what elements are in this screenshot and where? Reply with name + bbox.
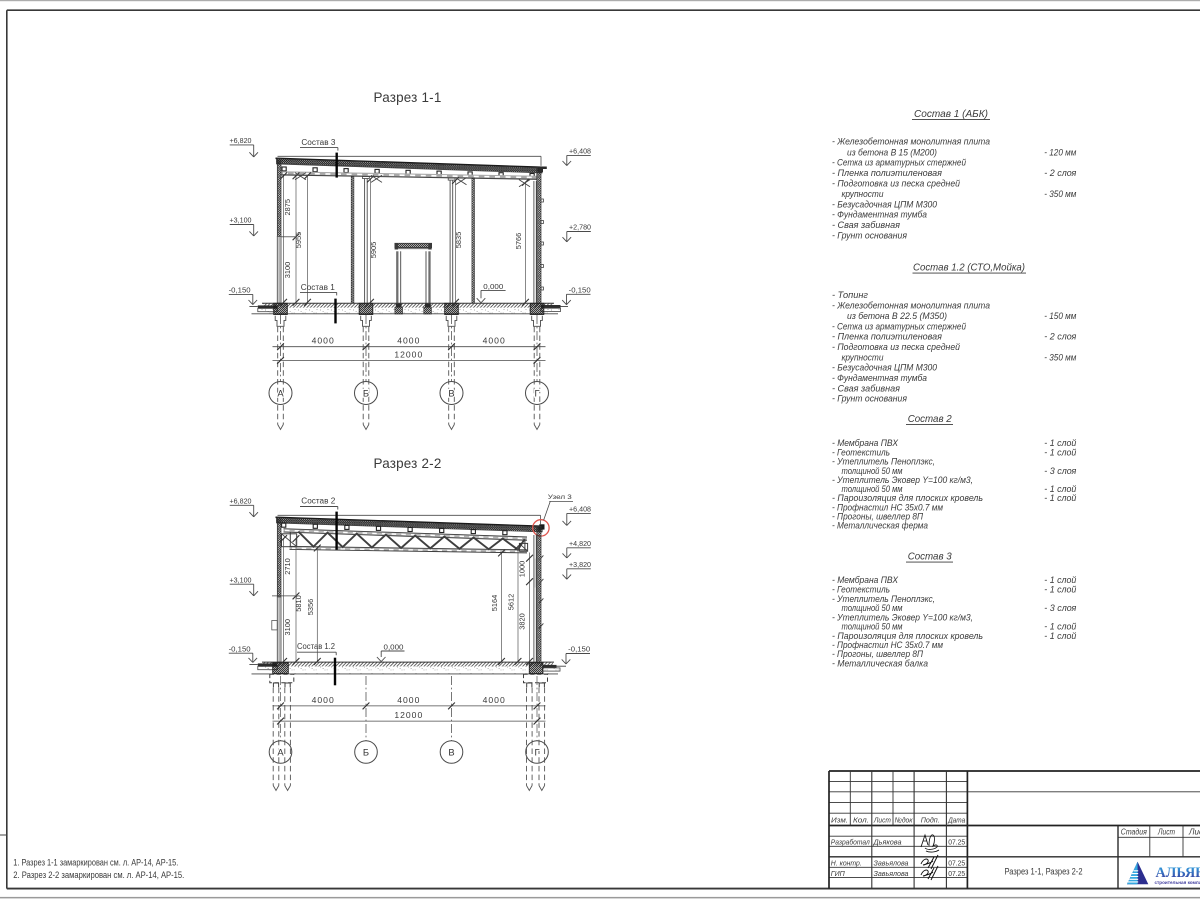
svg-text:Б: Б <box>363 746 369 757</box>
svg-text:07.25: 07.25 <box>948 859 965 868</box>
svg-text:Г: Г <box>534 746 539 757</box>
svg-text:- 1 слой: - 1 слой <box>1044 438 1076 448</box>
svg-text:- Свая забивная: - Свая забивная <box>832 383 900 393</box>
svg-text:4000: 4000 <box>397 695 420 705</box>
svg-text:-0,150: -0,150 <box>229 646 251 653</box>
svg-text:- Сетка из арматурных стержней: - Сетка из арматурных стержней <box>832 158 966 168</box>
svg-text:Разрез 1-1, Разрез 2-2: Разрез 1-1, Разрез 2-2 <box>1005 867 1083 878</box>
svg-text:Изм.: Изм. <box>831 815 848 824</box>
svg-text:Кол.: Кол. <box>853 815 869 824</box>
svg-text:Состав 1 (АБК): Состав 1 (АБК) <box>914 109 988 120</box>
svg-text:№док: №док <box>895 815 913 824</box>
svg-text:Разрез 1-1: Разрез 1-1 <box>374 90 442 105</box>
svg-text:Состав 2: Состав 2 <box>908 414 952 425</box>
svg-text:Разработал: Разработал <box>831 838 871 847</box>
svg-text:- 1 слой: - 1 слой <box>1044 493 1076 503</box>
svg-text:- Мембрана ПВХ: - Мембрана ПВХ <box>832 438 899 448</box>
svg-text:3820: 3820 <box>518 613 527 630</box>
svg-text:4000: 4000 <box>397 336 420 346</box>
svg-text:Завьялова: Завьялова <box>874 859 909 868</box>
svg-text:Состав 1.2 (СТО,Мойка): Состав 1.2 (СТО,Мойка) <box>913 263 1025 274</box>
svg-text:Б: Б <box>363 387 369 398</box>
svg-text:0,000: 0,000 <box>384 644 404 651</box>
svg-text:+3,820: +3,820 <box>569 562 591 569</box>
svg-text:+3,100: +3,100 <box>230 218 252 225</box>
svg-text:5766: 5766 <box>514 233 523 250</box>
svg-text:- Топинг: - Топинг <box>832 290 869 300</box>
svg-text:Лист: Лист <box>873 815 891 824</box>
svg-text:+3,100: +3,100 <box>230 577 252 584</box>
svg-text:12000: 12000 <box>394 349 423 359</box>
svg-text:- 2 слоя: - 2 слоя <box>1044 168 1076 178</box>
svg-text:- 1 слой: - 1 слой <box>1044 584 1076 594</box>
svg-text:2. Разрез 2-2 замаркирован см.: 2. Разрез 2-2 замаркирован см. л. АР-14,… <box>13 870 184 880</box>
svg-text:А: А <box>277 387 284 398</box>
svg-text:- Грунт основания: - Грунт основания <box>832 231 907 241</box>
svg-text:- Фундаментная тумба: - Фундаментная тумба <box>832 210 927 220</box>
svg-text:3100: 3100 <box>283 619 292 636</box>
svg-text:Н. контр.: Н. контр. <box>831 859 862 868</box>
svg-text:Узел 3: Узел 3 <box>548 494 572 501</box>
svg-text:Дьякова: Дьякова <box>873 838 902 847</box>
svg-text:5955: 5955 <box>294 232 303 249</box>
svg-text:строительная компания: строительная компания <box>1155 880 1200 885</box>
svg-text:5905: 5905 <box>369 242 378 259</box>
svg-text:5356: 5356 <box>306 599 315 616</box>
svg-text:Лист: Лист <box>1157 827 1175 836</box>
svg-text:0,000: 0,000 <box>483 284 503 291</box>
svg-text:- Железобетонная монолитная п: - Железобетонная монолитная плита <box>832 301 990 311</box>
svg-text:4000: 4000 <box>483 336 506 346</box>
svg-text:- Фундаментная тумба: - Фундаментная тумба <box>832 373 927 383</box>
svg-text:-0,150: -0,150 <box>229 288 251 295</box>
svg-text:+4,820: +4,820 <box>569 541 591 548</box>
svg-text:- 120 мм: - 120 мм <box>1044 147 1076 157</box>
svg-text:- Металлическая балка: - Металлическая балка <box>832 658 928 668</box>
svg-text:Дата: Дата <box>947 815 965 824</box>
svg-text:- 350 мм: - 350 мм <box>1044 352 1076 362</box>
svg-text:Состав 2: Состав 2 <box>301 497 335 506</box>
svg-text:- Металлическая ферма: - Металлическая ферма <box>832 520 928 530</box>
svg-text:крупности: крупности <box>842 352 884 362</box>
svg-text:Подп.: Подп. <box>921 815 940 824</box>
svg-text:1. Разрез 1-1 замаркирован см.: 1. Разрез 1-1 замаркирован см. л. АР-14,… <box>13 857 178 867</box>
svg-text:ГИП: ГИП <box>831 869 846 878</box>
svg-text:12000: 12000 <box>394 710 423 720</box>
svg-text:Завьялова: Завьялова <box>874 869 909 878</box>
svg-text:- 150 мм: - 150 мм <box>1044 311 1076 321</box>
svg-text:2875: 2875 <box>283 199 292 216</box>
svg-text:Состав 3: Состав 3 <box>301 138 336 147</box>
svg-text:Г: Г <box>534 387 539 398</box>
svg-text:Разрез 2-2: Разрез 2-2 <box>374 456 442 471</box>
svg-text:4000: 4000 <box>312 336 335 346</box>
svg-text:- 1 слой: - 1 слой <box>1044 447 1076 457</box>
svg-text:2710: 2710 <box>283 558 292 575</box>
svg-text:- Пленка полиэтиленовая: - Пленка полиэтиленовая <box>832 168 942 178</box>
svg-text:- 1 слой: - 1 слой <box>1044 631 1076 641</box>
svg-text:В: В <box>448 746 454 757</box>
svg-text:5164: 5164 <box>490 595 499 612</box>
svg-text:- Подготовка из песка средней: - Подготовка из песка средней <box>832 179 960 189</box>
svg-text:+6,820: +6,820 <box>230 138 252 145</box>
svg-text:07.25: 07.25 <box>948 838 965 847</box>
svg-text:- 3 слоя: - 3 слоя <box>1044 603 1076 613</box>
svg-text:крупности: крупности <box>842 189 884 199</box>
svg-text:В: В <box>448 387 454 398</box>
svg-text:- 350 мм: - 350 мм <box>1044 189 1076 199</box>
svg-text:+6,408: +6,408 <box>569 507 591 514</box>
svg-text:Состав 1: Состав 1 <box>301 283 335 292</box>
svg-text:5810: 5810 <box>294 595 303 612</box>
svg-text:5835: 5835 <box>454 232 463 249</box>
svg-text:из бетона В 22.5 (М350): из бетона В 22.5 (М350) <box>847 311 947 321</box>
svg-text:4000: 4000 <box>312 695 335 705</box>
svg-text:+6,820: +6,820 <box>230 498 252 505</box>
svg-text:- Безусадочная ЦПМ М300: - Безусадочная ЦПМ М300 <box>832 200 937 210</box>
svg-text:- Пленка полиэтиленовая: - Пленка полиэтиленовая <box>832 332 942 342</box>
svg-text:- Свая забивная: - Свая забивная <box>832 220 900 230</box>
svg-text:АЛЬЯНС: АЛЬЯНС <box>1156 865 1200 881</box>
svg-text:Лис: Лис <box>1188 827 1200 836</box>
svg-text:+6,408: +6,408 <box>569 149 591 156</box>
svg-text:- Железобетонная монолитная п: - Железобетонная монолитная плита <box>832 136 990 146</box>
svg-text:-0,150: -0,150 <box>568 647 590 654</box>
svg-text:А: А <box>277 746 284 757</box>
svg-text:Состав 3: Состав 3 <box>908 552 952 563</box>
svg-text:- 3 слоя: - 3 слоя <box>1044 466 1076 476</box>
svg-text:Стадия: Стадия <box>1121 827 1148 836</box>
svg-text:- Безусадочная ЦПМ М300: - Безусадочная ЦПМ М300 <box>832 363 937 373</box>
svg-text:3100: 3100 <box>283 262 292 279</box>
svg-text:07.25: 07.25 <box>948 869 965 878</box>
svg-text:5612: 5612 <box>506 594 515 611</box>
svg-text:4000: 4000 <box>483 695 506 705</box>
svg-text:+2,780: +2,780 <box>569 225 591 232</box>
svg-text:из бетона В 15 (М200): из бетона В 15 (М200) <box>847 147 937 157</box>
svg-text:- 2 слоя: - 2 слоя <box>1044 332 1076 342</box>
svg-text:1000: 1000 <box>518 561 527 578</box>
svg-text:Состав 1.2: Состав 1.2 <box>297 642 335 651</box>
svg-text:- Сетка из арматурных стержней: - Сетка из арматурных стержней <box>832 321 966 331</box>
svg-text:-0,150: -0,150 <box>569 287 591 294</box>
svg-text:- Подготовка из песка средней: - Подготовка из песка средней <box>832 342 960 352</box>
svg-text:- Грунт основания: - Грунт основания <box>832 394 907 404</box>
